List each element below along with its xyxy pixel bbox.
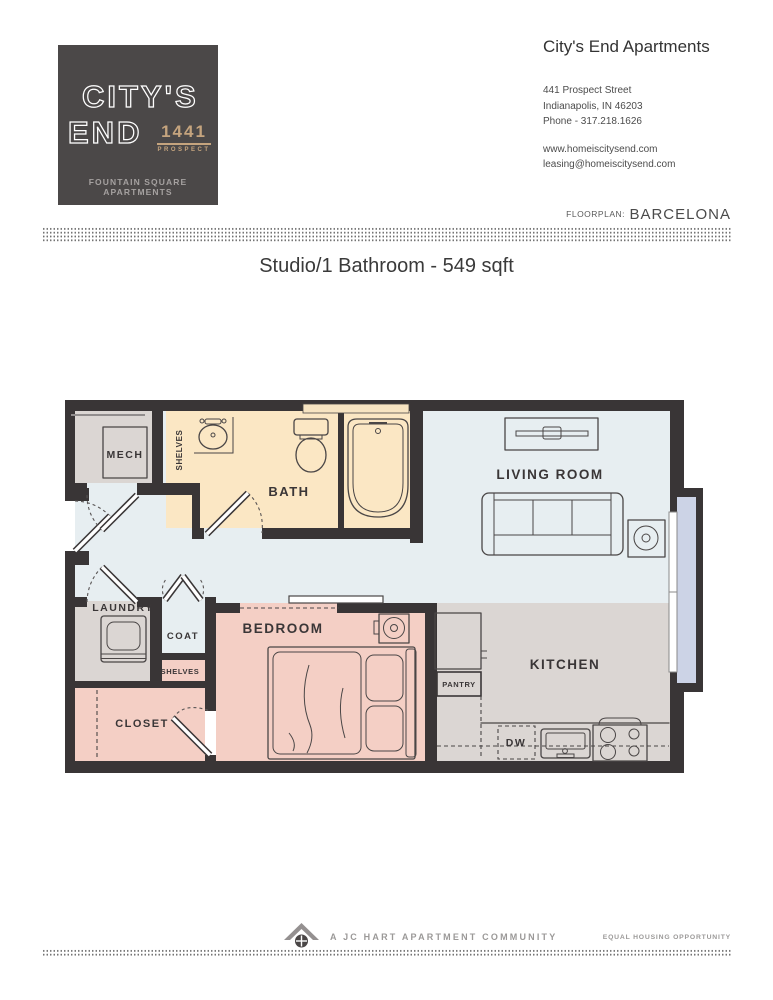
dotted-divider-top — [42, 227, 731, 242]
floorplan-label: FLOORPLAN: — [566, 209, 625, 219]
logo-badge-number: 1441 — [157, 122, 211, 145]
bath-niche — [303, 404, 409, 413]
logo: CITY'S END 1441 PROSPECT FOUNTAIN SQUARE… — [58, 45, 218, 205]
equal-housing-text: EQUAL HOUSING OPPORTUNITY — [603, 934, 731, 941]
floorplan-diagram: MECH SHELVES BATH LIVING ROOM LAUNDRY CO… — [57, 393, 707, 785]
flyer-page: CITY'S END 1441 PROSPECT FOUNTAIN SQUARE… — [0, 0, 773, 1000]
label-pantry: PANTRY — [442, 680, 476, 689]
unit-summary: Studio/1 Bathroom - 549 sqft — [0, 255, 773, 278]
label-bath: BATH — [268, 484, 309, 499]
logo-tagline: FOUNTAIN SQUARE APARTMENTS — [58, 177, 218, 197]
window-bay — [669, 497, 696, 683]
label-living-room: LIVING ROOM — [496, 467, 603, 482]
label-shelves-bath: SHELVES — [175, 429, 184, 470]
floorplan-bar: FLOORPLAN: BARCELONA — [566, 206, 731, 224]
phone-number: Phone - 317.218.1626 — [543, 114, 710, 130]
logo-word-end: END — [68, 115, 142, 151]
label-bedroom: BEDROOM — [243, 621, 324, 636]
contact-block: City's End Apartments 441 Prospect Stree… — [543, 37, 710, 173]
floorplan-name: BARCELONA — [629, 206, 731, 223]
label-closet: CLOSET — [115, 718, 169, 730]
footer-community-text: A JC HART APARTMENT COMMUNITY — [330, 932, 557, 942]
window-glass — [677, 497, 696, 683]
address-street: 441 Prospect Street — [543, 83, 710, 99]
address-city: Indianapolis, IN 46203 — [543, 99, 710, 115]
coat-floor — [155, 597, 205, 660]
label-coat: COAT — [167, 631, 199, 642]
logo-badge-text: PROSPECT — [157, 147, 211, 153]
jchart-house-icon — [283, 922, 320, 952]
property-title: City's End Apartments — [543, 37, 710, 57]
email-address: leasing@homeiscitysend.com — [543, 157, 710, 173]
mech-floor — [75, 411, 163, 483]
footer-community: A JC HART APARTMENT COMMUNITY — [283, 922, 557, 952]
dotted-divider-bottom — [42, 949, 731, 956]
label-mech: MECH — [107, 449, 144, 461]
logo-badge: 1441 PROSPECT — [157, 122, 211, 153]
label-kitchen: KITCHEN — [530, 657, 601, 672]
logo-word-citys: CITY'S — [82, 79, 199, 115]
label-laundry: LAUNDRY — [92, 602, 153, 614]
label-dishwasher: DW — [506, 737, 527, 749]
label-shelves-closet: SHELVES — [161, 667, 200, 676]
website-url: www.homeiscitysend.com — [543, 142, 710, 158]
